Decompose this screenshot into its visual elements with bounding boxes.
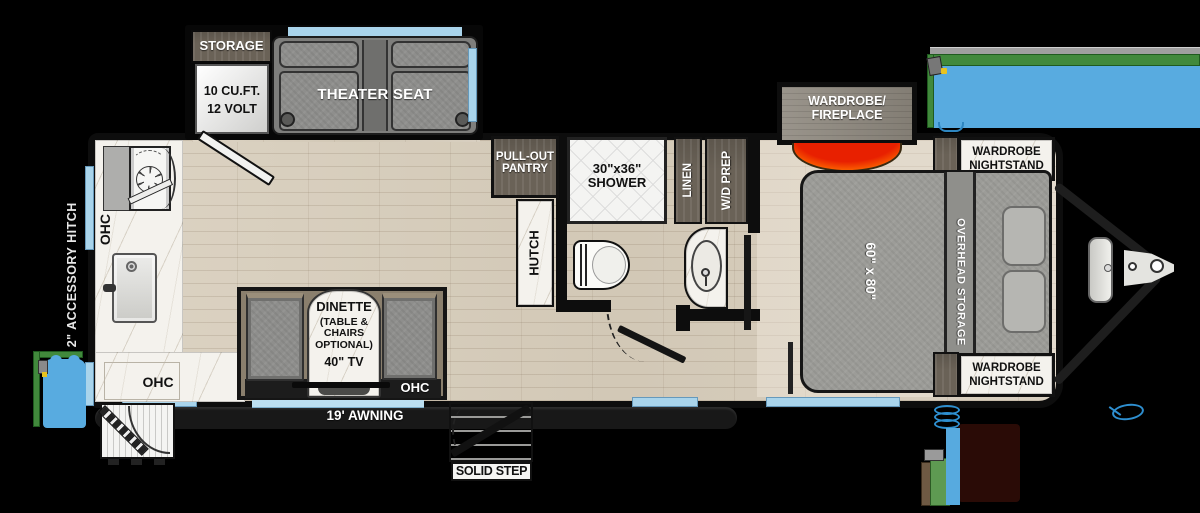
nightstand-bottom-line2: NIGHTSTAND xyxy=(958,376,1055,390)
pillow-bottom xyxy=(1002,270,1046,333)
coupler-pin-icon xyxy=(1128,262,1137,271)
ohc-dinette-label: OHC xyxy=(392,381,438,395)
bedroom-door-parked xyxy=(788,342,793,394)
linen-label: LINEN xyxy=(682,163,694,198)
window-bedroom-bottom xyxy=(766,397,900,407)
awning-foot-icon xyxy=(938,122,964,132)
dinette-sub3: OPTIONAL) xyxy=(307,340,381,351)
window-left-lower xyxy=(85,362,94,406)
nightstand-top-line1: WARDROBE xyxy=(958,146,1055,160)
floorplan-diagram: 19' AWNING OHC OHC DINETTE (TABLE & CHAI… xyxy=(0,0,1200,513)
pantry-line2: PANTRY xyxy=(491,163,559,175)
rear-step-foot-2 xyxy=(131,459,142,465)
pantry-line1: PULL-OUT xyxy=(491,151,559,163)
front-awning-green xyxy=(927,54,1200,66)
shower-line1: 30"x36" xyxy=(567,162,667,176)
window-slide-right xyxy=(468,48,477,122)
wd-prep-cabinet: W/D PREP xyxy=(705,137,748,224)
awning-arm-pin-icon xyxy=(941,68,947,74)
storage-label: STORAGE xyxy=(199,39,263,53)
camp-gear-blue xyxy=(946,428,960,505)
rear-awning-pin xyxy=(42,372,47,377)
tv-label: 40" TV xyxy=(307,356,381,370)
dinette-sub2: CHAIRS xyxy=(307,328,381,339)
bath-wall-bottom-left xyxy=(556,300,611,312)
wardrobe-bottom-cabinet xyxy=(933,352,959,397)
wardrobe-fireplace-label: WARDROBE/ FIREPLACE xyxy=(777,95,917,122)
awning-label: 19' AWNING xyxy=(300,409,430,424)
vanity-faucet-stem xyxy=(705,277,707,286)
camp-gear-bracket xyxy=(924,449,944,461)
solid-step-plate: SOLID STEP xyxy=(451,462,532,481)
bed-size: 60" x 80" xyxy=(854,228,886,314)
rear-step-foot-1 xyxy=(108,459,119,465)
rear-awning-bump-2 xyxy=(68,355,80,364)
rear-awning-bump-1 xyxy=(50,355,62,364)
coupler-ball-icon xyxy=(1150,259,1164,273)
shower-label: 30"x36" SHOWER xyxy=(567,162,667,190)
front-awning-fabric xyxy=(934,66,1200,128)
wardrobe-fireplace-line2: FIREPLACE xyxy=(777,109,917,123)
dinette-bench-left xyxy=(246,293,304,381)
vanity-faucet-icon xyxy=(701,268,710,277)
hutch: HUTCH xyxy=(516,199,554,307)
shower-line2: SHOWER xyxy=(567,176,667,190)
storage-cabinet: STORAGE xyxy=(191,30,272,63)
accessory-hitch: 2" ACCESSORY HITCH xyxy=(54,195,92,355)
fridge-line1: 10 CU.FT. xyxy=(195,82,269,100)
fridge-label: 10 CU.FT. 12 VOLT xyxy=(195,82,269,118)
nightstand-bottom-line1: WARDROBE xyxy=(958,362,1055,376)
theater-back-left xyxy=(279,41,359,68)
overhead-storage-label: OVERHEAD STORAGE xyxy=(954,218,966,346)
fridge-line2: 12 VOLT xyxy=(195,100,269,118)
bed-size-label: 60" x 80" xyxy=(863,242,878,300)
accessory-hitch-label: 2" ACCESSORY HITCH xyxy=(66,202,80,347)
rear-awning-fabric xyxy=(43,359,86,428)
dinette-title: DINETTE xyxy=(307,300,381,314)
front-awning-rail xyxy=(930,47,1200,54)
ohc-kitchen-label: OHC xyxy=(136,375,180,390)
solid-step-label: SOLID STEP xyxy=(456,465,527,479)
linen-cabinet: LINEN xyxy=(674,137,702,224)
theater-seat-label: THEATER SEAT xyxy=(280,87,470,103)
faucet-icon xyxy=(103,284,116,292)
pocket-door xyxy=(744,235,751,330)
range-hood xyxy=(103,146,130,211)
nightstand-bottom-label: WARDROBE NIGHTSTAND xyxy=(958,362,1055,389)
toilet-bowl xyxy=(592,246,626,284)
toilet-tank-lines xyxy=(580,244,587,286)
wd-prep-label: W/D PREP xyxy=(720,151,733,210)
dinette-bench-right xyxy=(382,293,437,380)
dinette-label: DINETTE (TABLE & CHAIRS OPTIONAL) 40" TV xyxy=(307,300,381,370)
rear-step-foot-3 xyxy=(154,459,165,465)
theater-back-right xyxy=(391,41,471,68)
tv-stand-icon xyxy=(318,388,370,395)
pantry-label: PULL-OUT PANTRY xyxy=(491,151,559,176)
camp-gear-shadow xyxy=(958,424,1020,502)
hutch-label: HUTCH xyxy=(528,230,542,276)
cupholder-left-icon xyxy=(280,112,295,127)
window-entry xyxy=(632,397,698,407)
bath-wall-right xyxy=(748,133,760,233)
pillow-top xyxy=(1002,206,1046,266)
ohc-left-label: OHC xyxy=(88,208,124,252)
propane-valve-icon xyxy=(1104,264,1112,272)
sink-drain-icon xyxy=(126,261,137,272)
wardrobe-fireplace-line1: WARDROBE/ xyxy=(777,95,917,109)
